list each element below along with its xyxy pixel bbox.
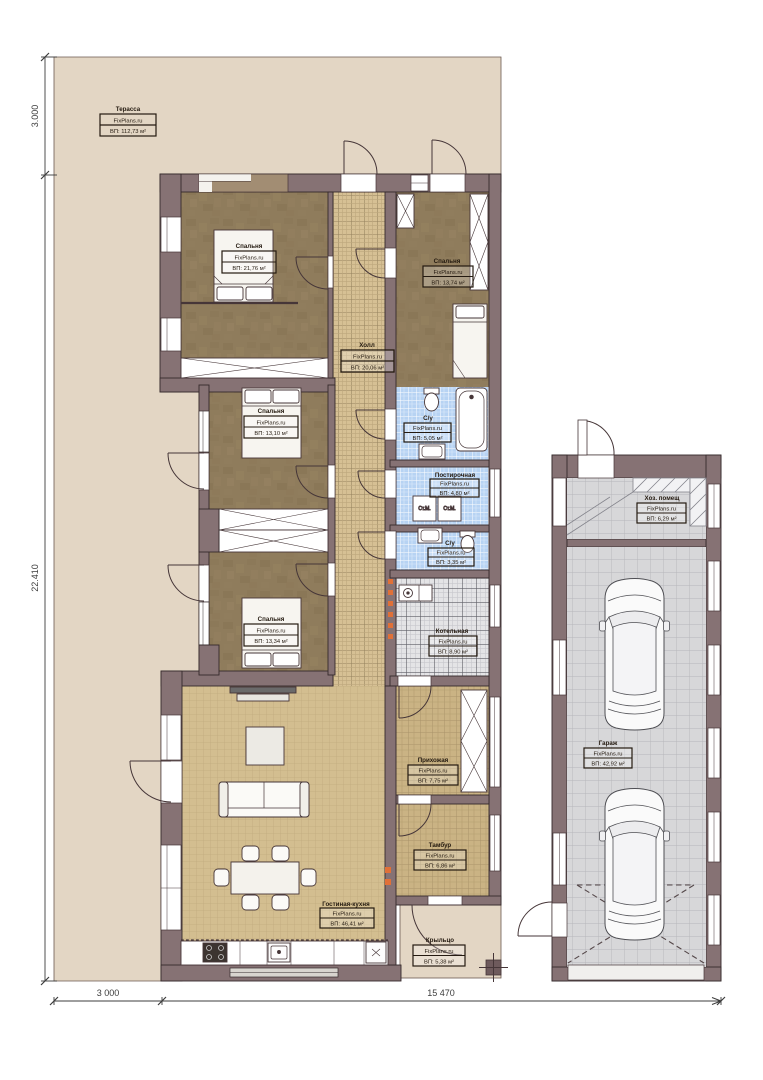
svg-text:ВП: 8,90 м²: ВП: 8,90 м² <box>438 650 468 656</box>
svg-text:FixPlans.ru: FixPlans.ru <box>353 355 382 361</box>
svg-text:15 470: 15 470 <box>427 988 455 998</box>
svg-text:FixPlans.ru: FixPlans.ru <box>333 912 362 918</box>
svg-text:ВП: 42,92 м²: ВП: 42,92 м² <box>591 762 624 768</box>
svg-text:ВП: 112,73 м²: ВП: 112,73 м² <box>110 129 146 135</box>
svg-text:ВП: 6,29 м²: ВП: 6,29 м² <box>646 517 676 523</box>
svg-text:Тамбур: Тамбур <box>429 842 452 849</box>
svg-text:FixPlans.ru: FixPlans.ru <box>425 949 454 955</box>
svg-text:ВП: 46,41 м²: ВП: 46,41 м² <box>330 922 363 928</box>
svg-text:FixPlans.ru: FixPlans.ru <box>594 752 623 758</box>
svg-text:FixPlans.ru: FixPlans.ru <box>419 769 448 775</box>
svg-text:ВП: 13,74 м²: ВП: 13,74 м² <box>431 281 464 287</box>
svg-text:Хоз. помещ: Хоз. помещ <box>645 495 681 502</box>
svg-text:Гараж: Гараж <box>599 740 618 747</box>
svg-text:FixPlans.ru: FixPlans.ru <box>647 507 676 513</box>
svg-text:Постирочная: Постирочная <box>435 472 476 479</box>
svg-text:ВП: 20,06 м²: ВП: 20,06 м² <box>351 366 384 372</box>
svg-text:22.410: 22.410 <box>30 564 40 592</box>
svg-text:ВП: 7,75 м²: ВП: 7,75 м² <box>418 779 448 785</box>
svg-text:Ст.М.: Ст.М. <box>418 506 430 512</box>
svg-text:Спальня: Спальня <box>434 258 461 265</box>
svg-text:FixPlans.ru: FixPlans.ru <box>413 426 442 432</box>
svg-text:Крыльцо: Крыльцо <box>426 937 454 944</box>
svg-text:FixPlans.ru: FixPlans.ru <box>257 629 286 635</box>
svg-text:FixPlans.ru: FixPlans.ru <box>114 119 143 125</box>
svg-text:FixPlans.ru: FixPlans.ru <box>439 640 468 646</box>
svg-text:FixPlans.ru: FixPlans.ru <box>440 482 469 488</box>
svg-text:Прихожая: Прихожая <box>418 757 449 764</box>
svg-text:FixPlans.ru: FixPlans.ru <box>434 270 463 276</box>
svg-text:Спальня: Спальня <box>258 616 285 623</box>
svg-text:ВП: 6,86 м²: ВП: 6,86 м² <box>425 864 455 870</box>
svg-text:С/у: С/у <box>423 415 433 422</box>
svg-text:3 000: 3 000 <box>97 988 120 998</box>
svg-text:ВП: 5,38 м²: ВП: 5,38 м² <box>424 960 454 966</box>
svg-text:ВП: 5,05 м²: ВП: 5,05 м² <box>412 436 442 442</box>
svg-text:Гостиная-кухня: Гостиная-кухня <box>322 901 370 908</box>
svg-text:FixPlans.ru: FixPlans.ru <box>426 854 455 860</box>
svg-text:С/у: С/у <box>445 540 455 547</box>
svg-text:FixPlans.ru: FixPlans.ru <box>235 256 264 262</box>
svg-text:FixPlans.ru: FixPlans.ru <box>437 551 466 557</box>
svg-text:ВП: 21,76 м²: ВП: 21,76 м² <box>232 266 265 272</box>
svg-text:FixPlans.ru: FixPlans.ru <box>257 421 286 427</box>
svg-text:Спальня: Спальня <box>258 408 285 415</box>
svg-text:3.000: 3.000 <box>30 105 40 128</box>
svg-text:Спальня: Спальня <box>236 243 263 250</box>
svg-text:Котельная: Котельная <box>436 628 469 635</box>
svg-text:Терасса: Терасса <box>116 106 141 113</box>
svg-text:ВП: 4,80 м²: ВП: 4,80 м² <box>439 491 469 497</box>
svg-text:Холл: Холл <box>359 342 375 349</box>
svg-text:ВП: 3,35 м²: ВП: 3,35 м² <box>436 560 466 566</box>
svg-text:ВП: 13,10 м²: ВП: 13,10 м² <box>254 431 287 437</box>
svg-text:ВП: 13,34 м²: ВП: 13,34 м² <box>254 639 287 645</box>
svg-text:Ст.М.: Ст.М. <box>443 506 455 512</box>
